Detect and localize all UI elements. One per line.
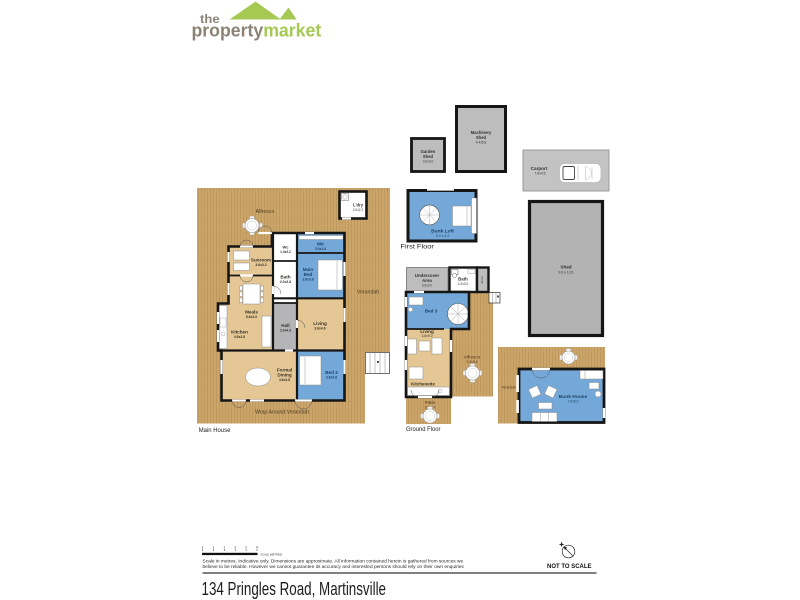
svg-text:Bed: Bed xyxy=(304,272,313,277)
svg-text:3.0x1.8: 3.0x1.8 xyxy=(315,247,326,251)
svg-text:134 Pringles Road, Martinsvill: 134 Pringles Road, Martinsville xyxy=(202,578,387,599)
svg-text:Wir: Wir xyxy=(317,242,325,247)
svg-text:7.6x4.5: 7.6x4.5 xyxy=(534,172,545,176)
svg-text:Alfresco: Alfresco xyxy=(256,209,275,215)
svg-text:Main House: Main House xyxy=(199,427,231,434)
svg-text:believe to be reliable. Howeve: believe to be reliable. However we canno… xyxy=(203,564,465,570)
svg-text:3.6x4.6: 3.6x4.6 xyxy=(314,327,325,331)
svg-text:3.9x3.0: 3.9x3.0 xyxy=(422,284,433,288)
svg-text:SCALE (METRES): SCALE (METRES) xyxy=(261,553,283,557)
svg-text:Bed 3: Bed 3 xyxy=(425,309,438,314)
svg-text:Meals: Meals xyxy=(245,310,258,315)
svg-text:Kitchenette: Kitchenette xyxy=(411,382,435,387)
svg-text:Wrap Around Verandah: Wrap Around Verandah xyxy=(255,409,309,415)
svg-text:3.8x3.8: 3.8x3.8 xyxy=(302,278,313,282)
svg-text:Store: Store xyxy=(480,276,484,284)
svg-text:Bath: Bath xyxy=(280,275,290,280)
svg-text:property: property xyxy=(192,20,264,41)
svg-text:Alfresco: Alfresco xyxy=(464,355,481,360)
svg-text:Kitchen: Kitchen xyxy=(231,330,248,335)
svg-text:2.0x3.8: 2.0x3.8 xyxy=(280,280,291,284)
svg-text:Verandah: Verandah xyxy=(357,290,379,296)
svg-text:3.6x3.2: 3.6x3.2 xyxy=(255,263,266,267)
svg-text:3.6x3.8: 3.6x3.8 xyxy=(326,376,337,380)
svg-text:Area: Area xyxy=(422,278,432,283)
svg-text:3.6x9.0: 3.6x9.0 xyxy=(421,334,432,338)
svg-text:7.0x5.0: 7.0x5.0 xyxy=(567,400,578,404)
svg-text:Sunroom: Sunroom xyxy=(251,258,271,263)
svg-text:4.6x4.6: 4.6x4.6 xyxy=(279,378,290,382)
svg-text:NOT TO SCALE: NOT TO SCALE xyxy=(547,564,592,570)
svg-text:1.0x2.2: 1.0x2.2 xyxy=(280,250,291,254)
svg-text:Shed: Shed xyxy=(476,135,487,140)
svg-text:3.0x3.0: 3.0x3.0 xyxy=(423,159,434,163)
svg-text:Patio: Patio xyxy=(425,400,436,405)
svg-text:Shed: Shed xyxy=(560,265,571,270)
svg-text:L'dry: L'dry xyxy=(353,203,364,208)
svg-text:Scale in metres. Indicative on: Scale in metres. Indicative only. Dimens… xyxy=(203,559,464,565)
svg-text:9.6 x 12.6: 9.6 x 12.6 xyxy=(559,271,574,275)
svg-text:Ground Floor: Ground Floor xyxy=(406,426,441,433)
svg-text:Living: Living xyxy=(313,321,327,326)
svg-text:Verandah: Verandah xyxy=(502,386,517,390)
svg-text:2.2x3.0: 2.2x3.0 xyxy=(458,282,469,286)
svg-text:6.0 x 4.4: 6.0 x 4.4 xyxy=(436,234,449,238)
svg-text:2.0x2.2: 2.0x2.2 xyxy=(353,208,364,212)
svg-text:First Floor: First Floor xyxy=(401,244,435,251)
svg-text:market: market xyxy=(263,20,321,41)
svg-text:2.0x4.3: 2.0x4.3 xyxy=(280,329,291,333)
svg-text:Hall: Hall xyxy=(281,323,289,328)
svg-text:Carport: Carport xyxy=(531,166,548,171)
svg-text:Bath: Bath xyxy=(458,277,468,282)
svg-text:Wc: Wc xyxy=(283,245,290,250)
svg-text:Bed 2: Bed 2 xyxy=(325,370,338,375)
svg-text:Dining: Dining xyxy=(277,373,291,378)
svg-text:Shed: Shed xyxy=(423,154,434,159)
svg-text:4.4x5.8: 4.4x5.8 xyxy=(476,140,487,144)
svg-text:4.5x2.8: 4.5x2.8 xyxy=(234,335,245,339)
svg-text:5.6x3.0: 5.6x3.0 xyxy=(246,315,257,319)
